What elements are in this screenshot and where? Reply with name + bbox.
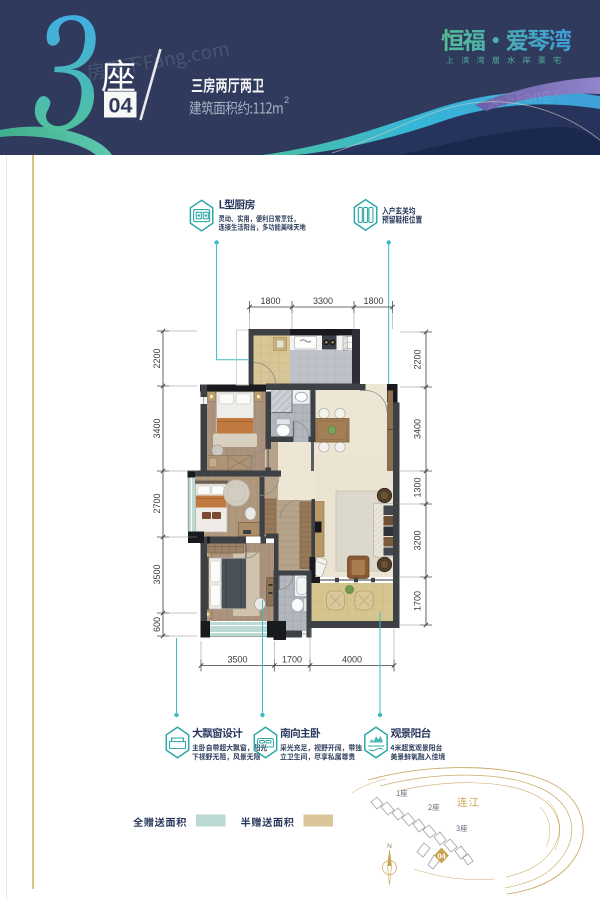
svg-text:1800: 1800 xyxy=(260,296,280,306)
svg-text:2: 2 xyxy=(284,95,289,105)
svg-text:2200: 2200 xyxy=(152,348,162,368)
svg-text:3500: 3500 xyxy=(227,655,247,665)
svg-text:1800: 1800 xyxy=(363,296,383,306)
svg-text:3300: 3300 xyxy=(313,296,333,306)
svg-text:3400: 3400 xyxy=(152,418,162,438)
svg-text:3400: 3400 xyxy=(413,419,423,439)
svg-text:3200: 3200 xyxy=(413,530,423,550)
svg-text:N: N xyxy=(387,843,392,850)
svg-text:1700: 1700 xyxy=(413,591,423,611)
svg-text:2700: 2700 xyxy=(152,493,162,513)
svg-text:2200: 2200 xyxy=(413,349,423,369)
svg-text:04: 04 xyxy=(437,852,446,861)
svg-text:600: 600 xyxy=(152,617,162,632)
svg-text:04: 04 xyxy=(109,94,133,118)
svg-text:3500: 3500 xyxy=(152,564,162,584)
svg-text:1700: 1700 xyxy=(282,655,302,665)
svg-text:4000: 4000 xyxy=(342,655,362,665)
svg-text:1300: 1300 xyxy=(413,477,423,497)
